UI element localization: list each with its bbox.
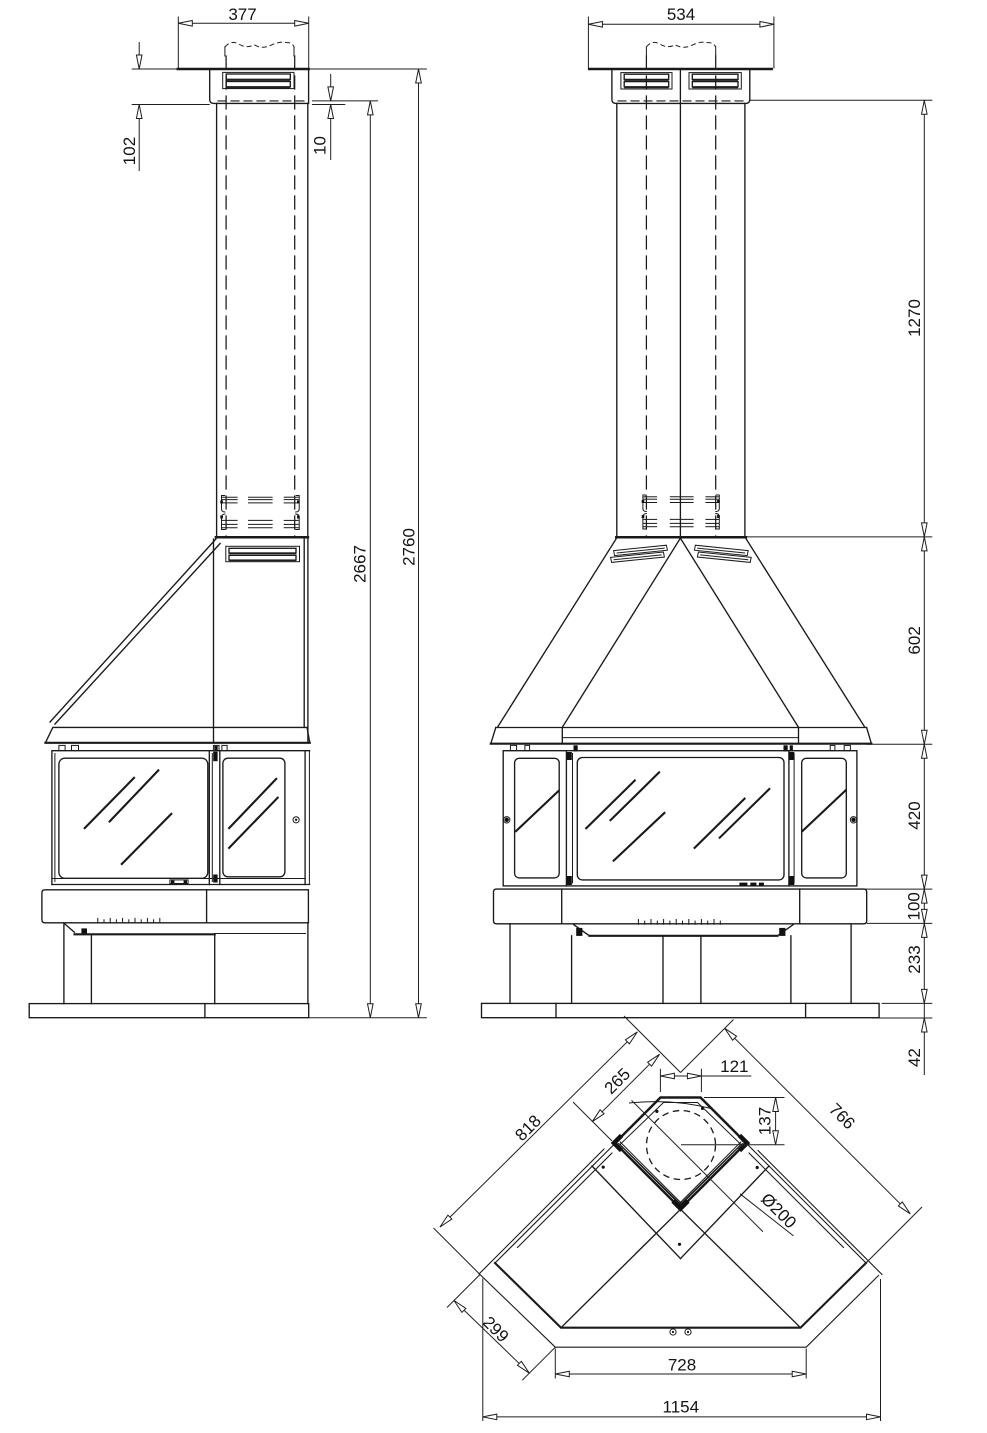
svg-text:1154: 1154 <box>663 1398 700 1417</box>
svg-text:2667: 2667 <box>351 545 370 583</box>
svg-text:728: 728 <box>668 1356 696 1375</box>
svg-text:233: 233 <box>905 945 924 973</box>
svg-text:602: 602 <box>905 626 924 654</box>
svg-text:102: 102 <box>120 137 139 165</box>
svg-text:42: 42 <box>905 1048 924 1067</box>
svg-text:377: 377 <box>228 5 256 24</box>
svg-text:534: 534 <box>667 5 695 24</box>
svg-text:420: 420 <box>905 801 924 829</box>
svg-text:121: 121 <box>720 1057 748 1076</box>
svg-text:2760: 2760 <box>400 528 419 566</box>
svg-text:100: 100 <box>905 892 924 920</box>
svg-text:10: 10 <box>311 136 330 155</box>
svg-text:137: 137 <box>756 1107 775 1135</box>
svg-text:1270: 1270 <box>905 299 924 337</box>
